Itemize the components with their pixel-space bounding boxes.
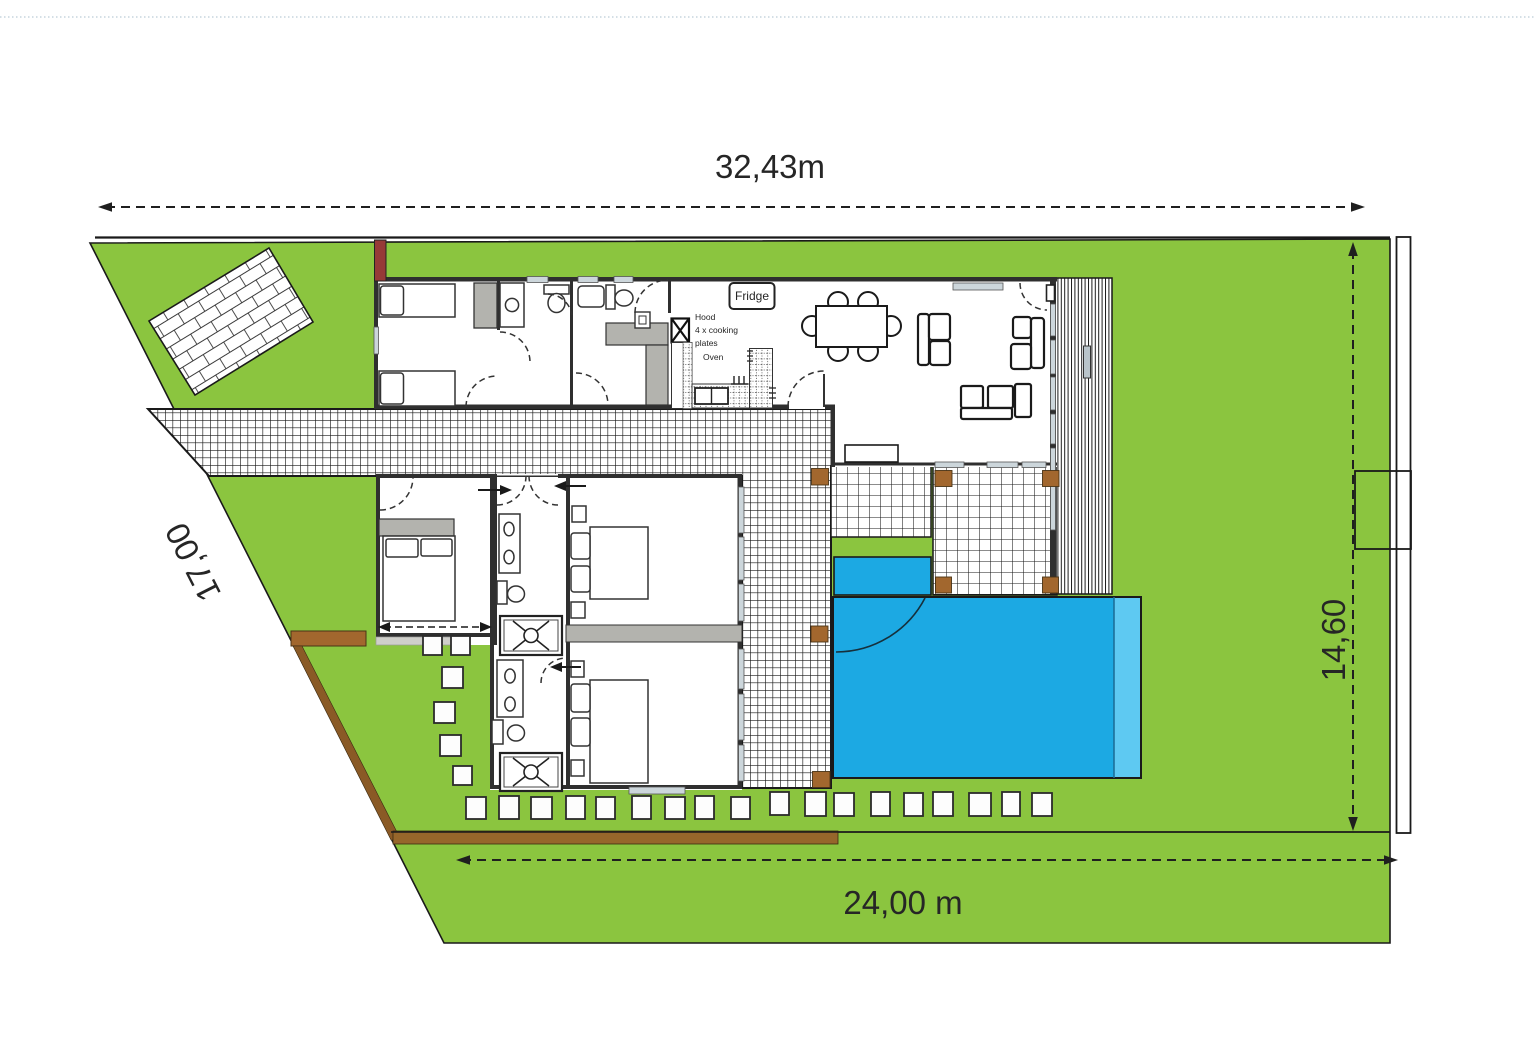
svg-text:Hood: Hood <box>695 312 716 322</box>
svg-text:4 x cooking: 4 x cooking <box>695 325 738 335</box>
svg-text:Oven: Oven <box>703 352 724 362</box>
svg-text:24,00 m: 24,00 m <box>843 884 962 921</box>
svg-text:Fridge: Fridge <box>735 289 769 303</box>
svg-text:plates: plates <box>695 338 718 348</box>
svg-text:17,00: 17,00 <box>158 517 228 607</box>
svg-text:32,43m: 32,43m <box>715 148 825 185</box>
svg-text:14,60: 14,60 <box>1315 599 1352 682</box>
